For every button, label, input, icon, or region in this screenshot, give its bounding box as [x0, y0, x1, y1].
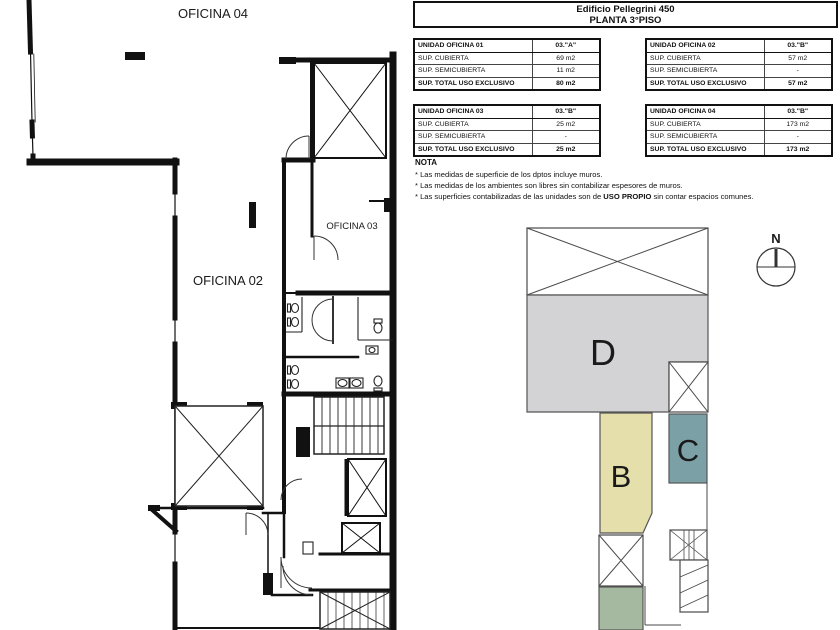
room-label-oficina-03: OFICINA 03	[326, 221, 377, 232]
unit-code: 03."B"	[764, 39, 832, 52]
unit-name: UNIDAD OFICINA 03	[414, 105, 532, 118]
key-plan-drawing: N D B C	[500, 215, 840, 630]
total-value: 80 m2	[532, 77, 600, 90]
nota-section: NOTA * Las medidas de superficie de los …	[415, 158, 835, 203]
row-label: SUP. SEMICUBIERTA	[414, 65, 532, 78]
row-value: 11 m2	[532, 65, 600, 78]
total-label: SUP. TOTAL USO EXCLUSIVO	[414, 77, 532, 90]
row-label: SUP. SEMICUBIERTA	[646, 131, 764, 144]
row-label: SUP. CUBIERTA	[646, 52, 764, 65]
row-label: SUP. SEMICUBIERTA	[646, 65, 764, 78]
stairs-main	[314, 397, 384, 454]
row-value: -	[764, 65, 832, 78]
row-value: 69 m2	[532, 52, 600, 65]
row-value: 25 m2	[532, 118, 600, 131]
keyplan-crossed-lower	[599, 535, 643, 586]
row-value: 57 m2	[764, 52, 832, 65]
total-label: SUP. TOTAL USO EXCLUSIVO	[646, 77, 764, 90]
floor-plan-drawing: OFICINA 04 OFICINA 02 OFICINA 03	[0, 0, 410, 630]
nota-item: * Las medidas de superficie de los dptos…	[415, 169, 835, 180]
unit-code: 03."A"	[532, 39, 600, 52]
unit-table-oficina-04: UNIDAD OFICINA 04 03."B" SUP. CUBIERTA 1…	[645, 104, 833, 157]
unit-name: UNIDAD OFICINA 02	[646, 39, 764, 52]
elevator-shaft-a	[346, 459, 386, 516]
row-label: SUP. CUBIERTA	[414, 52, 532, 65]
title-box: Edificio Pellegrini 450 PLANTA 3°PISO	[413, 1, 838, 28]
north-label: N	[771, 231, 780, 246]
total-value: 57 m2	[764, 77, 832, 90]
keyplan-crossed-small	[669, 362, 708, 412]
unit-table-oficina-03: UNIDAD OFICINA 03 03."B" SUP. CUBIERTA 2…	[413, 104, 601, 157]
unit-name: UNIDAD OFICINA 04	[646, 105, 764, 118]
patio-void	[175, 406, 263, 506]
row-label: SUP. CUBIERTA	[646, 118, 764, 131]
row-value: -	[764, 131, 832, 144]
total-value: 25 m2	[532, 143, 600, 156]
row-label: SUP. CUBIERTA	[414, 118, 532, 131]
elevator-shaft-top	[312, 62, 386, 159]
nota-title: NOTA	[415, 158, 835, 167]
nota-item: * Las medidas de los ambientes son libre…	[415, 180, 835, 191]
room-label-oficina-02: OFICINA 02	[193, 273, 263, 288]
page-root: { "header": { "title": "Edificio Pellegr…	[0, 0, 840, 630]
keyplan-label-d: D	[590, 332, 616, 373]
keyplan-label-c: C	[677, 433, 699, 468]
north-arrow-icon	[757, 248, 795, 286]
row-value: 173 m2	[764, 118, 832, 131]
row-label: SUP. SEMICUBIERTA	[414, 131, 532, 144]
nota-item: * Las superficies contabilizadas de las …	[415, 191, 835, 202]
total-value: 173 m2	[764, 143, 832, 156]
unit-code: 03."B"	[764, 105, 832, 118]
keyplan-core-stairs	[645, 483, 708, 625]
elevator-shaft-b	[342, 523, 380, 553]
keyplan-green-block	[599, 587, 643, 630]
total-label: SUP. TOTAL USO EXCLUSIVO	[414, 143, 532, 156]
door-arcs	[246, 136, 338, 595]
stairs-bottom	[320, 592, 390, 629]
total-label: SUP. TOTAL USO EXCLUSIVO	[646, 143, 764, 156]
unit-table-oficina-01: UNIDAD OFICINA 01 03."A" SUP. CUBIERTA 6…	[413, 38, 601, 91]
room-label-oficina-04: OFICINA 04	[178, 6, 248, 21]
keyplan-crossed-top	[527, 228, 708, 295]
unit-name: UNIDAD OFICINA 01	[414, 39, 532, 52]
page-title: Edificio Pellegrini 450	[576, 4, 674, 15]
unit-table-oficina-02: UNIDAD OFICINA 02 03."B" SUP. CUBIERTA 5…	[645, 38, 833, 91]
page-subtitle: PLANTA 3°PISO	[590, 15, 662, 26]
keyplan-label-b: B	[611, 459, 632, 494]
unit-code: 03."B"	[532, 105, 600, 118]
row-value: -	[532, 131, 600, 144]
